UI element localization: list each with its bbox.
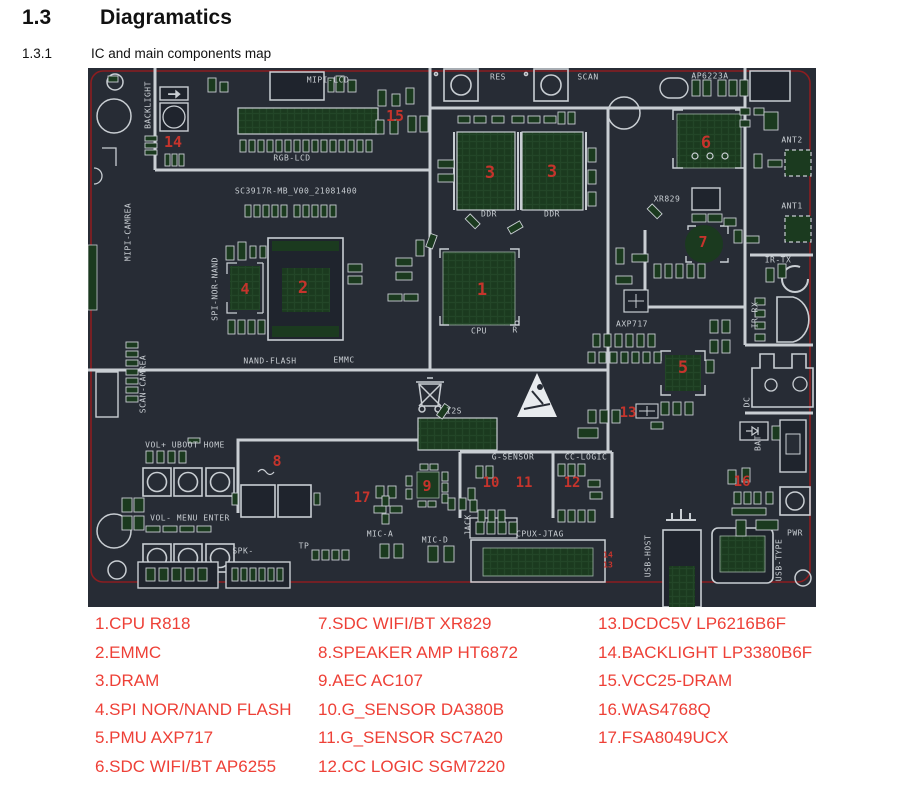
component-number: 1 bbox=[477, 280, 487, 300]
component-number: 12 bbox=[564, 475, 581, 491]
silkscreen-label: SCAN-CAMREA bbox=[139, 355, 148, 413]
silkscreen-label: IR-TX bbox=[765, 256, 792, 265]
silkscreen-label: TP bbox=[299, 542, 310, 551]
component-number: 13 bbox=[603, 561, 613, 570]
component-number: 9 bbox=[422, 477, 431, 495]
silkscreen-label: CPUX-JTAG bbox=[516, 530, 564, 539]
silkscreen-label: EMMC bbox=[333, 356, 354, 365]
silkscreen-label: MIC-A bbox=[367, 530, 394, 539]
component-number: 17 bbox=[354, 490, 371, 506]
legend-item: 16.WAS4768Q bbox=[598, 696, 812, 725]
silkscreen-label: USB-HOST bbox=[644, 535, 653, 578]
silkscreen-label: MIPI-LCD bbox=[307, 76, 350, 85]
component-number: 10 bbox=[483, 475, 500, 491]
legend-item: 15.VCC25-DRAM bbox=[598, 667, 812, 696]
component-number: 3 bbox=[547, 162, 557, 182]
pcb-board-diagram: MIPI-LCDRGB-LCDRESSCANAP6223AANT2ANT1XR8… bbox=[88, 68, 816, 607]
component-number: 5 bbox=[678, 358, 688, 378]
silkscreen-label: USB-TYPE bbox=[775, 539, 784, 582]
silkscreen-label: JACK bbox=[464, 514, 473, 535]
silkscreen-label: ANT2 bbox=[781, 136, 802, 145]
legend-column: 13.DCDC5V LP6216B6F14.BACKLIGHT LP3380B6… bbox=[598, 610, 812, 753]
silkscreen-label: VOL+ UBOOT HOME bbox=[145, 441, 225, 450]
silkscreen-label: DDR bbox=[481, 210, 497, 219]
silkscreen-label: CC-LOGIC bbox=[565, 453, 608, 462]
subsection-heading: 1.3.1 IC and main components map bbox=[22, 46, 271, 61]
silkscreen-label: PWR bbox=[787, 529, 803, 538]
legend-column: 1.CPU R8182.EMMC3.DRAM4.SPI NOR/NAND FLA… bbox=[95, 610, 292, 781]
silkscreen-label: DC bbox=[743, 397, 752, 408]
legend-item: 10.G_SENSOR DA380B bbox=[318, 696, 518, 725]
component-number: 14 bbox=[164, 133, 182, 151]
silkscreen-label: SCAN bbox=[577, 73, 598, 82]
silkscreen-label: G-SENSOR bbox=[492, 453, 535, 462]
silkscreen-label: NAND-FLASH bbox=[243, 357, 296, 366]
silkscreen-label: CPU bbox=[471, 327, 487, 336]
legend-item: 14.BACKLIGHT LP3380B6F bbox=[598, 639, 812, 668]
legend-item: 17.FSA8049UCX bbox=[598, 724, 812, 753]
silkscreen-label: DDR bbox=[544, 210, 560, 219]
legend-item: 3.DRAM bbox=[95, 667, 292, 696]
silkscreen-label: AXP717 bbox=[616, 320, 648, 329]
legend-item: 4.SPI NOR/NAND FLASH bbox=[95, 696, 292, 725]
legend-item: 2.EMMC bbox=[95, 639, 292, 668]
component-number: 6 bbox=[701, 133, 711, 153]
legend-item: 6.SDC WIFI/BT AP6255 bbox=[95, 753, 292, 782]
silkscreen-label: AP6223A bbox=[691, 72, 728, 81]
silkscreen-label: R bbox=[512, 326, 517, 335]
silkscreen-label: SPK- bbox=[232, 547, 253, 556]
silkscreen-label: SC3917R-MB_V00_21081400 bbox=[235, 187, 357, 196]
legend-item: 8.SPEAKER AMP HT6872 bbox=[318, 639, 518, 668]
component-number: 14 bbox=[603, 551, 613, 560]
silkscreen-label: XR829 bbox=[654, 195, 681, 204]
silkscreen-label: BACKLIGHT bbox=[144, 81, 153, 129]
silkscreen-label: BAT bbox=[754, 435, 763, 451]
legend-column: 7.SDC WIFI/BT XR8298.SPEAKER AMP HT68729… bbox=[318, 610, 518, 781]
legend-item: 5.PMU AXP717 bbox=[95, 724, 292, 753]
legend-item: 11.G_SENSOR SC7A20 bbox=[318, 724, 518, 753]
silkscreen-label: I2S bbox=[446, 407, 462, 416]
component-number: 3 bbox=[485, 163, 495, 183]
silkscreen-label: SPI-NOR-NAND bbox=[211, 257, 220, 321]
section-number: 1.3 bbox=[22, 6, 100, 30]
silkscreen-label: RGB-LCD bbox=[273, 154, 310, 163]
silkscreen-label: ANT1 bbox=[781, 202, 802, 211]
silkscreen-label: VOL- MENU ENTER bbox=[150, 514, 230, 523]
section-title: Diagramatics bbox=[100, 6, 232, 30]
section-heading: 1.3 Diagramatics bbox=[22, 6, 882, 30]
legend-item: 9.AEC AC107 bbox=[318, 667, 518, 696]
silkscreen-label: MIC-D bbox=[422, 536, 449, 545]
component-number: 16 bbox=[734, 474, 751, 490]
legend-item: 12.CC LOGIC SGM7220 bbox=[318, 753, 518, 782]
silkscreen-label: MIPI-CAMREA bbox=[124, 203, 133, 261]
component-number: 8 bbox=[272, 452, 281, 470]
silkscreen-label: RES bbox=[490, 73, 506, 82]
legend-item: 1.CPU R818 bbox=[95, 610, 292, 639]
component-number: 4 bbox=[240, 280, 249, 298]
component-number: 13 bbox=[620, 405, 637, 421]
component-number: 11 bbox=[516, 475, 533, 491]
legend-item: 13.DCDC5V LP6216B6F bbox=[598, 610, 812, 639]
component-number: 15 bbox=[386, 107, 404, 125]
silkscreen-label: IR-RX bbox=[751, 302, 760, 329]
subsection-title: IC and main components map bbox=[91, 46, 271, 61]
subsection-number: 1.3.1 bbox=[22, 46, 91, 61]
component-number: 2 bbox=[298, 278, 308, 298]
legend-item: 7.SDC WIFI/BT XR829 bbox=[318, 610, 518, 639]
component-number: 7 bbox=[698, 233, 707, 251]
